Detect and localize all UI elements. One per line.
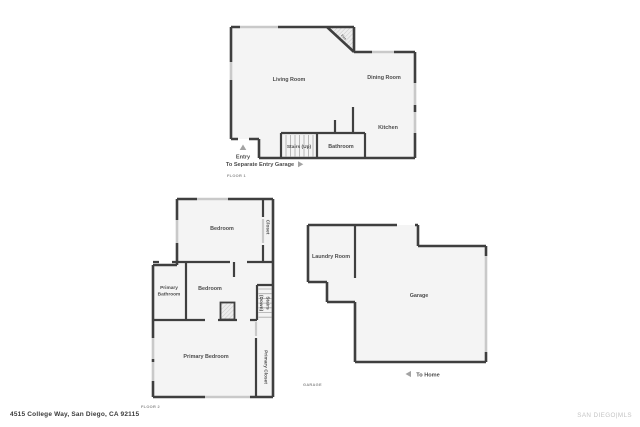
floor1-caption: FLOOR 1 (227, 173, 246, 178)
triangle-left-icon (406, 371, 412, 377)
triangle-up-icon (240, 145, 247, 151)
garage-caption: GARAGE (303, 382, 322, 387)
to-home-label: To Home (416, 373, 440, 379)
shower-box (221, 303, 235, 320)
floorplan-sheet: Living Room Dining Room Kitchen Bathroom… (0, 0, 640, 427)
primary-closet-label: Primary Closet (263, 350, 269, 384)
triangle-right-icon (298, 161, 303, 167)
primary-bathroom-label-line2: Bathroom (158, 292, 181, 298)
closet-label: Closet (265, 220, 271, 235)
primary-bathroom-label-line1: Primary (160, 285, 178, 291)
entry-label: Entry (236, 155, 251, 161)
primary-bedroom-label: Primary Bedroom (183, 354, 228, 360)
floor2-caption: FLOOR 2 (141, 404, 160, 409)
property-address: 4515 College Way, San Diego, CA 92115 (10, 411, 139, 418)
dining-room-label: Dining Room (367, 75, 401, 81)
mls-watermark: SAN DIEGO|MLS (577, 412, 632, 419)
to-separate-entry-garage-label: To Separate Entry Garage (226, 162, 294, 168)
bedroom-middle-label: Bedroom (198, 286, 222, 292)
floor2-plan: Bedroom Closet Primary Bathroom Bedroom … (138, 190, 282, 412)
kitchen-label: Kitchen (378, 125, 398, 131)
garage-label: Garage (410, 293, 429, 299)
bathroom-label: Bathroom (328, 144, 354, 150)
living-room-label: Living Room (273, 77, 306, 83)
stairs-up-label: Stairs (Up) (287, 144, 312, 150)
bedroom-top-label: Bedroom (210, 226, 234, 232)
floor1-plan: Living Room Dining Room Kitchen Bathroom… (215, 15, 425, 185)
stairs-down-label-line2: (Down) (258, 295, 264, 312)
stairs-down-label-line1: Stairs (265, 296, 271, 310)
garage-plan: Laundry Room Garage To Home GARAGE (296, 215, 496, 392)
laundry-room-label: Laundry Room (312, 254, 350, 260)
